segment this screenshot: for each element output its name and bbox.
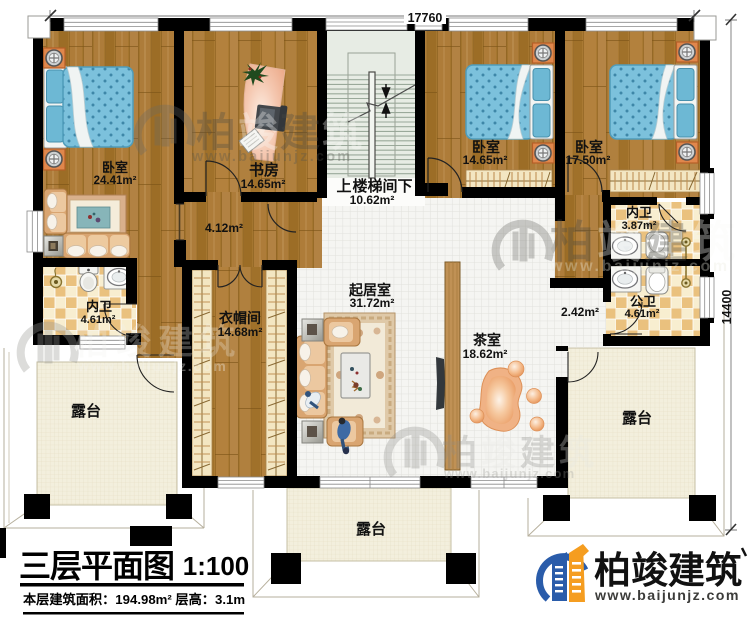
- svg-text:内卫: 内卫: [626, 205, 652, 220]
- svg-text:公卫: 公卫: [630, 294, 656, 309]
- svg-text:2.42m²: 2.42m²: [561, 305, 599, 319]
- svg-text:柏竣建筑: 柏竣建筑: [594, 549, 742, 591]
- svg-text:三层平面图: 三层平面图: [19, 548, 174, 584]
- svg-text:14.65m²: 14.65m²: [463, 153, 508, 167]
- svg-text:衣帽间: 衣帽间: [219, 310, 261, 326]
- svg-text:4.61m²: 4.61m²: [625, 308, 660, 320]
- svg-text:14.68m²: 14.68m²: [218, 325, 263, 339]
- svg-text:www.baijunjz.com: www.baijunjz.com: [443, 466, 575, 481]
- svg-text:17760: 17760: [408, 11, 443, 25]
- svg-text:露台: 露台: [356, 520, 386, 538]
- svg-text:www.baijunjz.com: www.baijunjz.com: [77, 358, 228, 374]
- svg-text:17.50m²: 17.50m²: [566, 153, 611, 167]
- svg-text:露台: 露台: [622, 409, 652, 427]
- svg-text:14.65m²: 14.65m²: [241, 177, 286, 191]
- svg-text:www.baijunjz.com: www.baijunjz.com: [549, 258, 730, 275]
- svg-text:18.62m²: 18.62m²: [463, 347, 508, 361]
- svg-text:3.87m²: 3.87m²: [622, 220, 657, 232]
- svg-text:1:100: 1:100: [183, 551, 250, 581]
- svg-text:10.62m²: 10.62m²: [350, 193, 395, 207]
- svg-text:24.41m²: 24.41m²: [94, 175, 137, 187]
- svg-text:本层建筑面积：194.98m² 层高：3.1m: 本层建筑面积：194.98m² 层高：3.1m: [23, 591, 245, 607]
- svg-text:卧室: 卧室: [102, 160, 128, 175]
- svg-text:31.72m²: 31.72m²: [350, 296, 395, 310]
- svg-text:4.12m²: 4.12m²: [205, 221, 243, 235]
- svg-text:4.61m²: 4.61m²: [81, 314, 116, 326]
- svg-text:茶室: 茶室: [472, 332, 501, 348]
- svg-text:下: 下: [397, 178, 412, 195]
- svg-text:内卫: 内卫: [86, 299, 112, 314]
- svg-text:14400: 14400: [720, 290, 734, 325]
- svg-text:露台: 露台: [71, 402, 101, 420]
- svg-text:www.baijunjz.com: www.baijunjz.com: [594, 588, 740, 604]
